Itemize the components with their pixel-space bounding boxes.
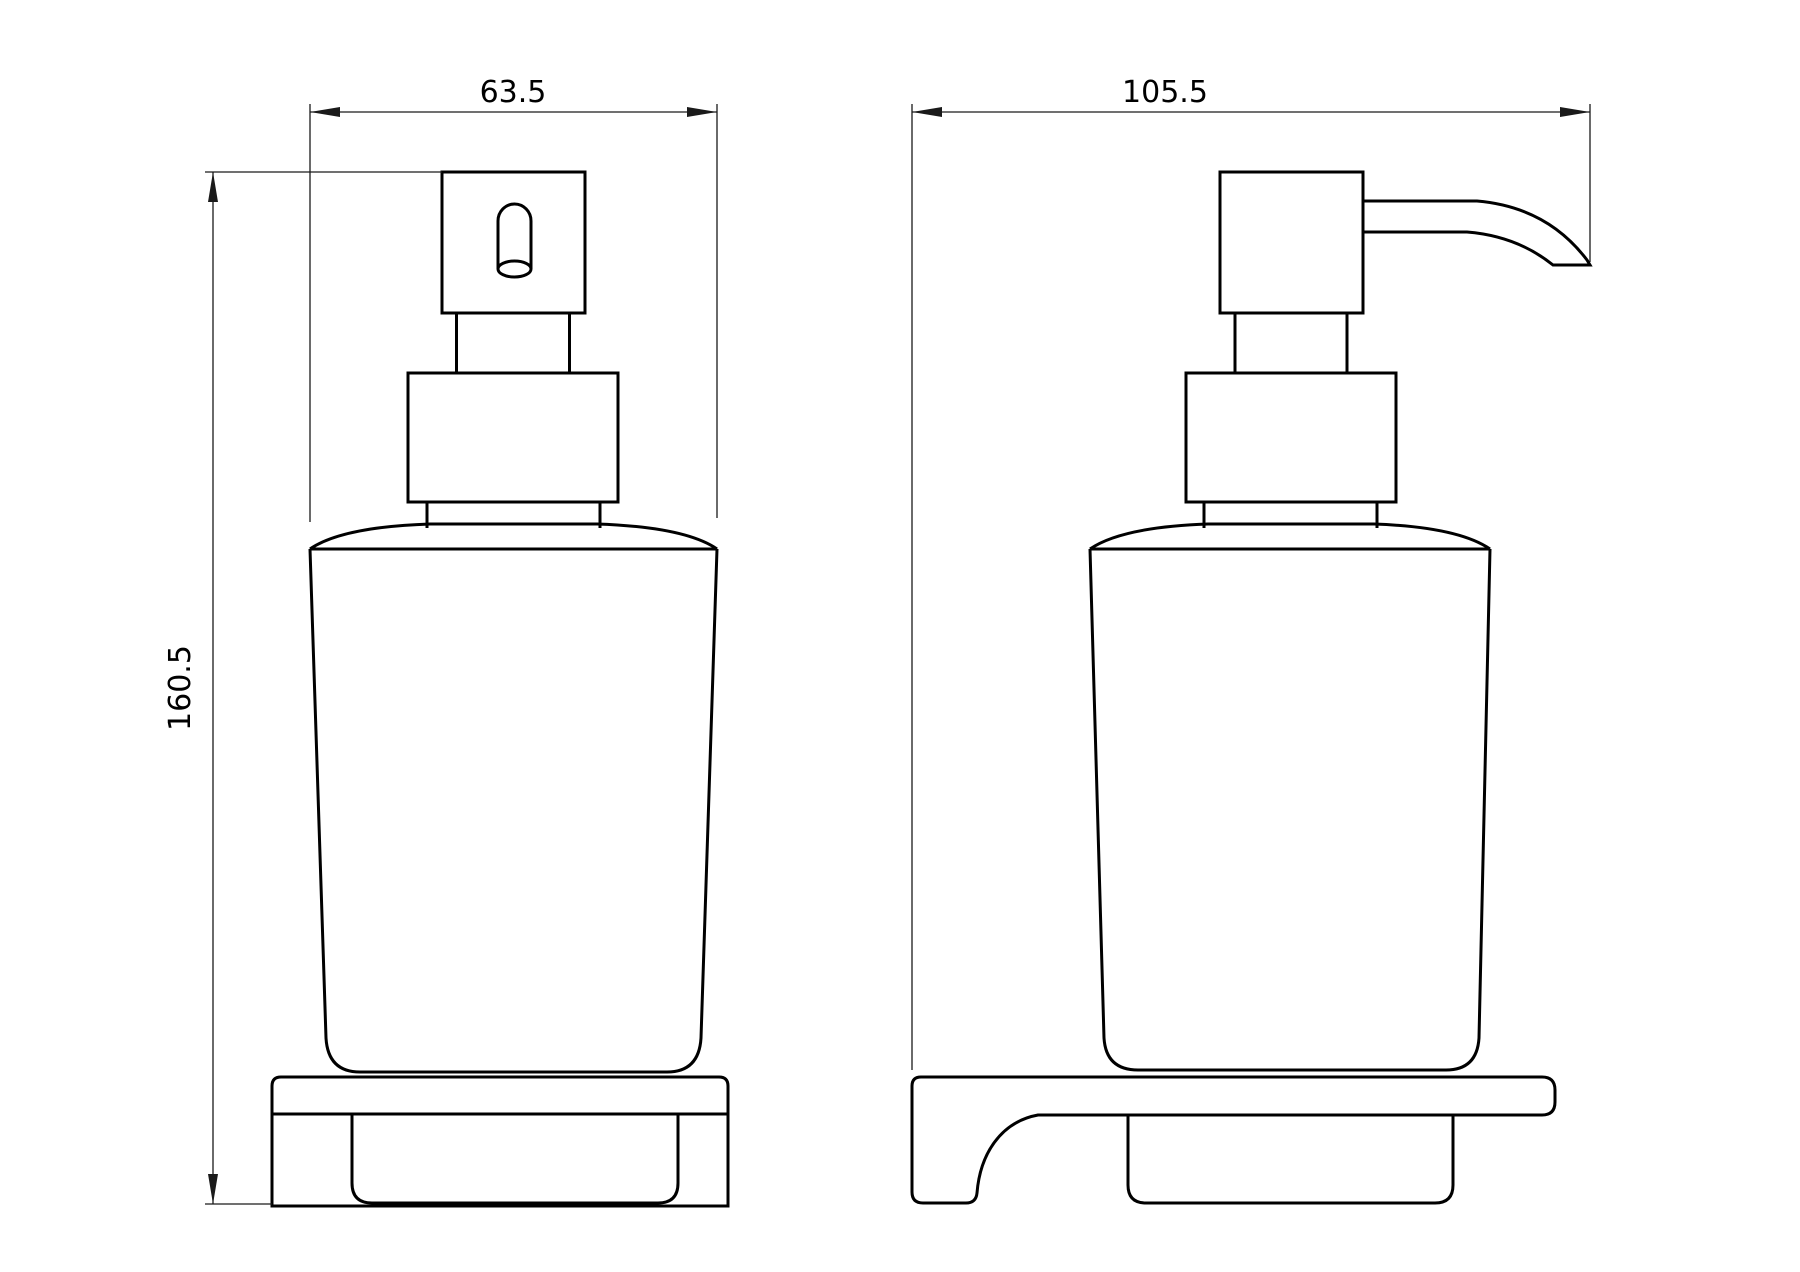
front-pump-collar <box>408 373 618 502</box>
front-bottle-shoulder <box>310 524 717 549</box>
dimension-value-side-depth: 105.5 <box>1122 75 1208 110</box>
front-bottle-body <box>310 549 717 1072</box>
side-wall-bracket <box>912 1077 1555 1203</box>
arrowhead-right <box>687 107 717 117</box>
arrowhead-left <box>310 107 340 117</box>
front-pump-slot <box>498 204 531 269</box>
dimension-front-width: 63.5 <box>310 75 717 522</box>
side-pump-head <box>1220 172 1363 313</box>
arrowhead-top <box>208 172 218 202</box>
front-holder-plate <box>272 1077 728 1114</box>
front-pump-slot-opening <box>498 261 531 277</box>
front-pump-head <box>442 172 585 313</box>
front-view <box>272 172 728 1206</box>
arrowhead-right <box>1560 107 1590 117</box>
dimension-value-overall-height: 160.5 <box>163 645 198 731</box>
side-pump-collar <box>1186 373 1396 502</box>
side-pump-stem <box>1235 313 1347 373</box>
side-view <box>912 172 1590 1203</box>
front-holder-ring <box>352 1114 678 1203</box>
technical-drawing-page: 63.5 105.5 160.5 <box>0 0 1800 1272</box>
arrowhead-left <box>912 107 942 117</box>
dimension-overall-height: 160.5 <box>163 172 442 1204</box>
side-holder-ring <box>1128 1115 1453 1203</box>
dimension-value-front-width: 63.5 <box>480 75 547 110</box>
soap-dispenser-drawing: 63.5 105.5 160.5 <box>0 0 1800 1272</box>
front-holder-band <box>272 1114 728 1206</box>
side-bottle-body <box>1090 549 1490 1070</box>
side-bottle-shoulder <box>1090 524 1490 549</box>
side-pump-spout <box>1363 201 1590 265</box>
arrowhead-bottom <box>208 1174 218 1204</box>
front-pump-stem <box>457 313 570 373</box>
